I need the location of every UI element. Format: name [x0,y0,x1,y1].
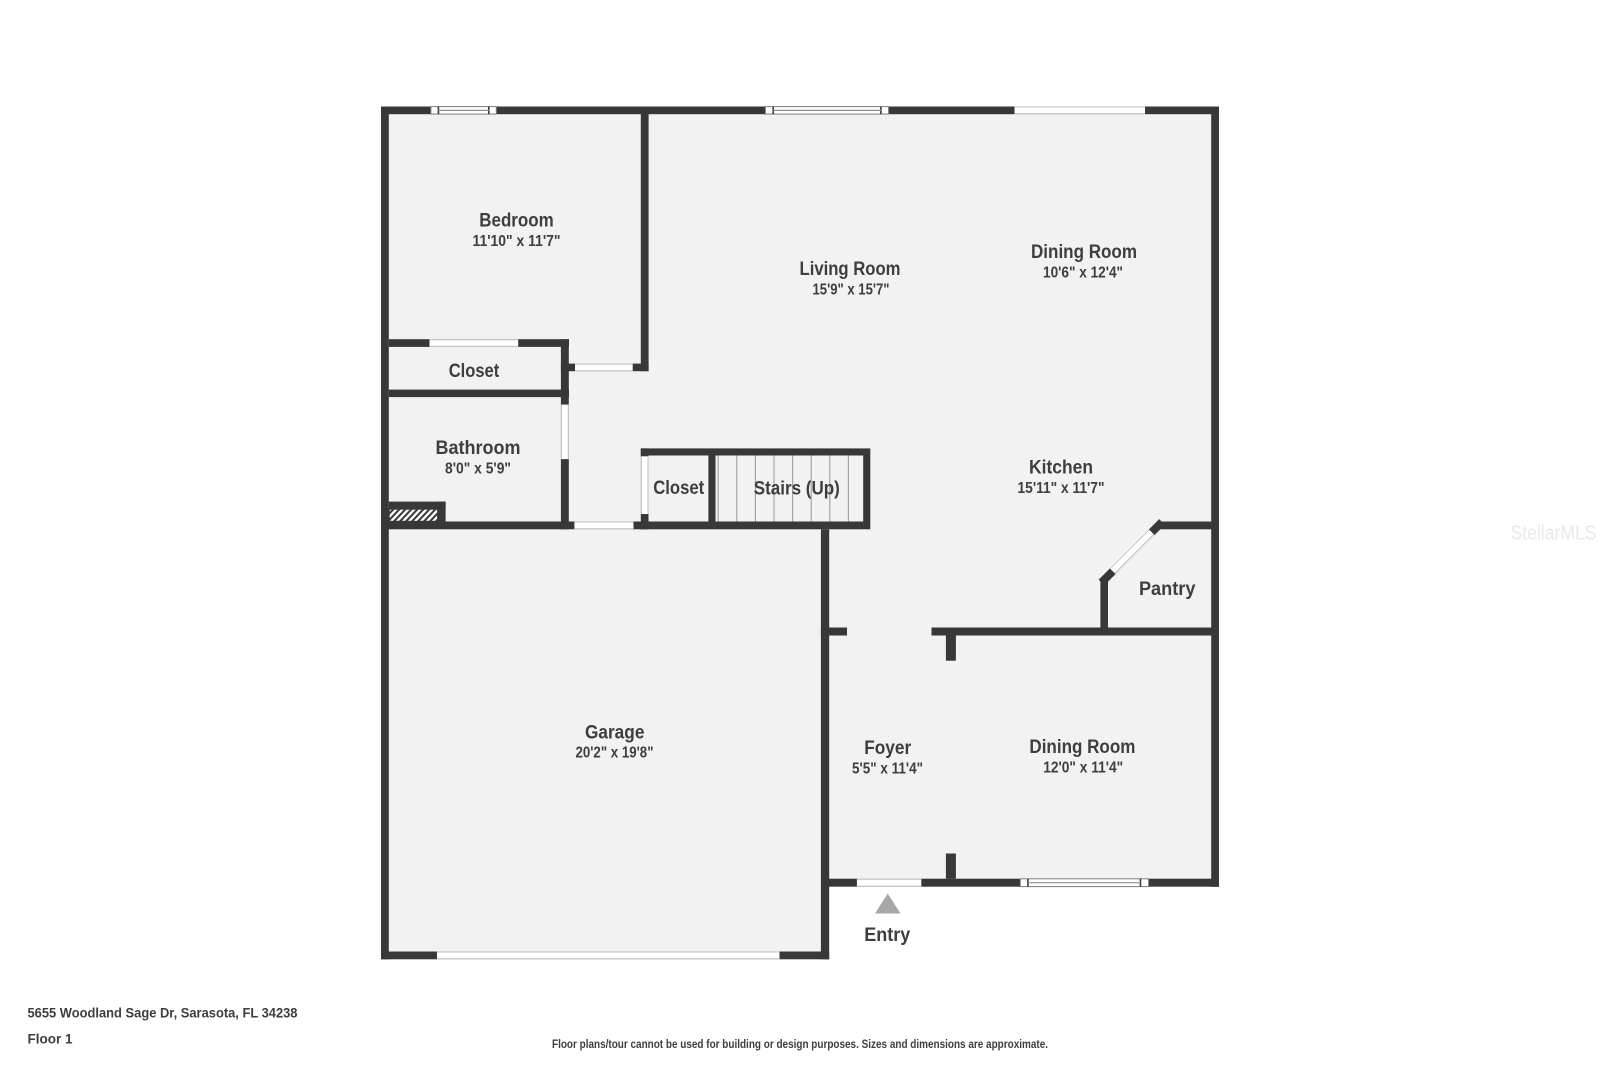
svg-text:Closet: Closet [449,360,500,382]
svg-text:Kitchen: Kitchen [1029,457,1093,479]
svg-text:Entry: Entry [864,924,910,946]
svg-text:Closet: Closet [653,477,704,499]
svg-text:20'2" x 19'8": 20'2" x 19'8" [576,745,654,762]
svg-text:5'5" x 11'4": 5'5" x 11'4" [852,760,923,777]
svg-text:11'10" x 11'7": 11'10" x 11'7" [473,233,561,250]
svg-text:Bedroom: Bedroom [479,210,554,232]
svg-text:10'6" x 12'4": 10'6" x 12'4" [1043,264,1123,281]
svg-text:Pantry: Pantry [1139,578,1196,600]
svg-text:Floor 1: Floor 1 [28,1032,73,1047]
svg-text:15'11" x 11'7": 15'11" x 11'7" [1018,480,1105,497]
svg-text:15'9" x 15'7": 15'9" x 15'7" [813,282,890,299]
svg-text:Garage: Garage [585,721,645,743]
svg-text:12'0" x 11'4": 12'0" x 11'4" [1043,760,1123,777]
svg-text:8'0" x 5'9": 8'0" x 5'9" [445,461,511,478]
svg-text:Stairs (Up): Stairs (Up) [754,478,840,500]
svg-text:Foyer: Foyer [864,737,911,759]
svg-text:Living Room: Living Room [800,258,901,280]
svg-text:5655 Woodland Sage Dr, Sarasot: 5655 Woodland Sage Dr, Sarasota, FL 3423… [28,1006,298,1021]
svg-text:Dining Room: Dining Room [1029,736,1135,758]
svg-text:Bathroom: Bathroom [436,437,521,459]
svg-text:Floor plans/tour cannot be use: Floor plans/tour cannot be used for buil… [552,1039,1048,1051]
svg-text:Dining Room: Dining Room [1031,241,1137,263]
svg-text:StellarMLS: StellarMLS [1511,523,1597,545]
